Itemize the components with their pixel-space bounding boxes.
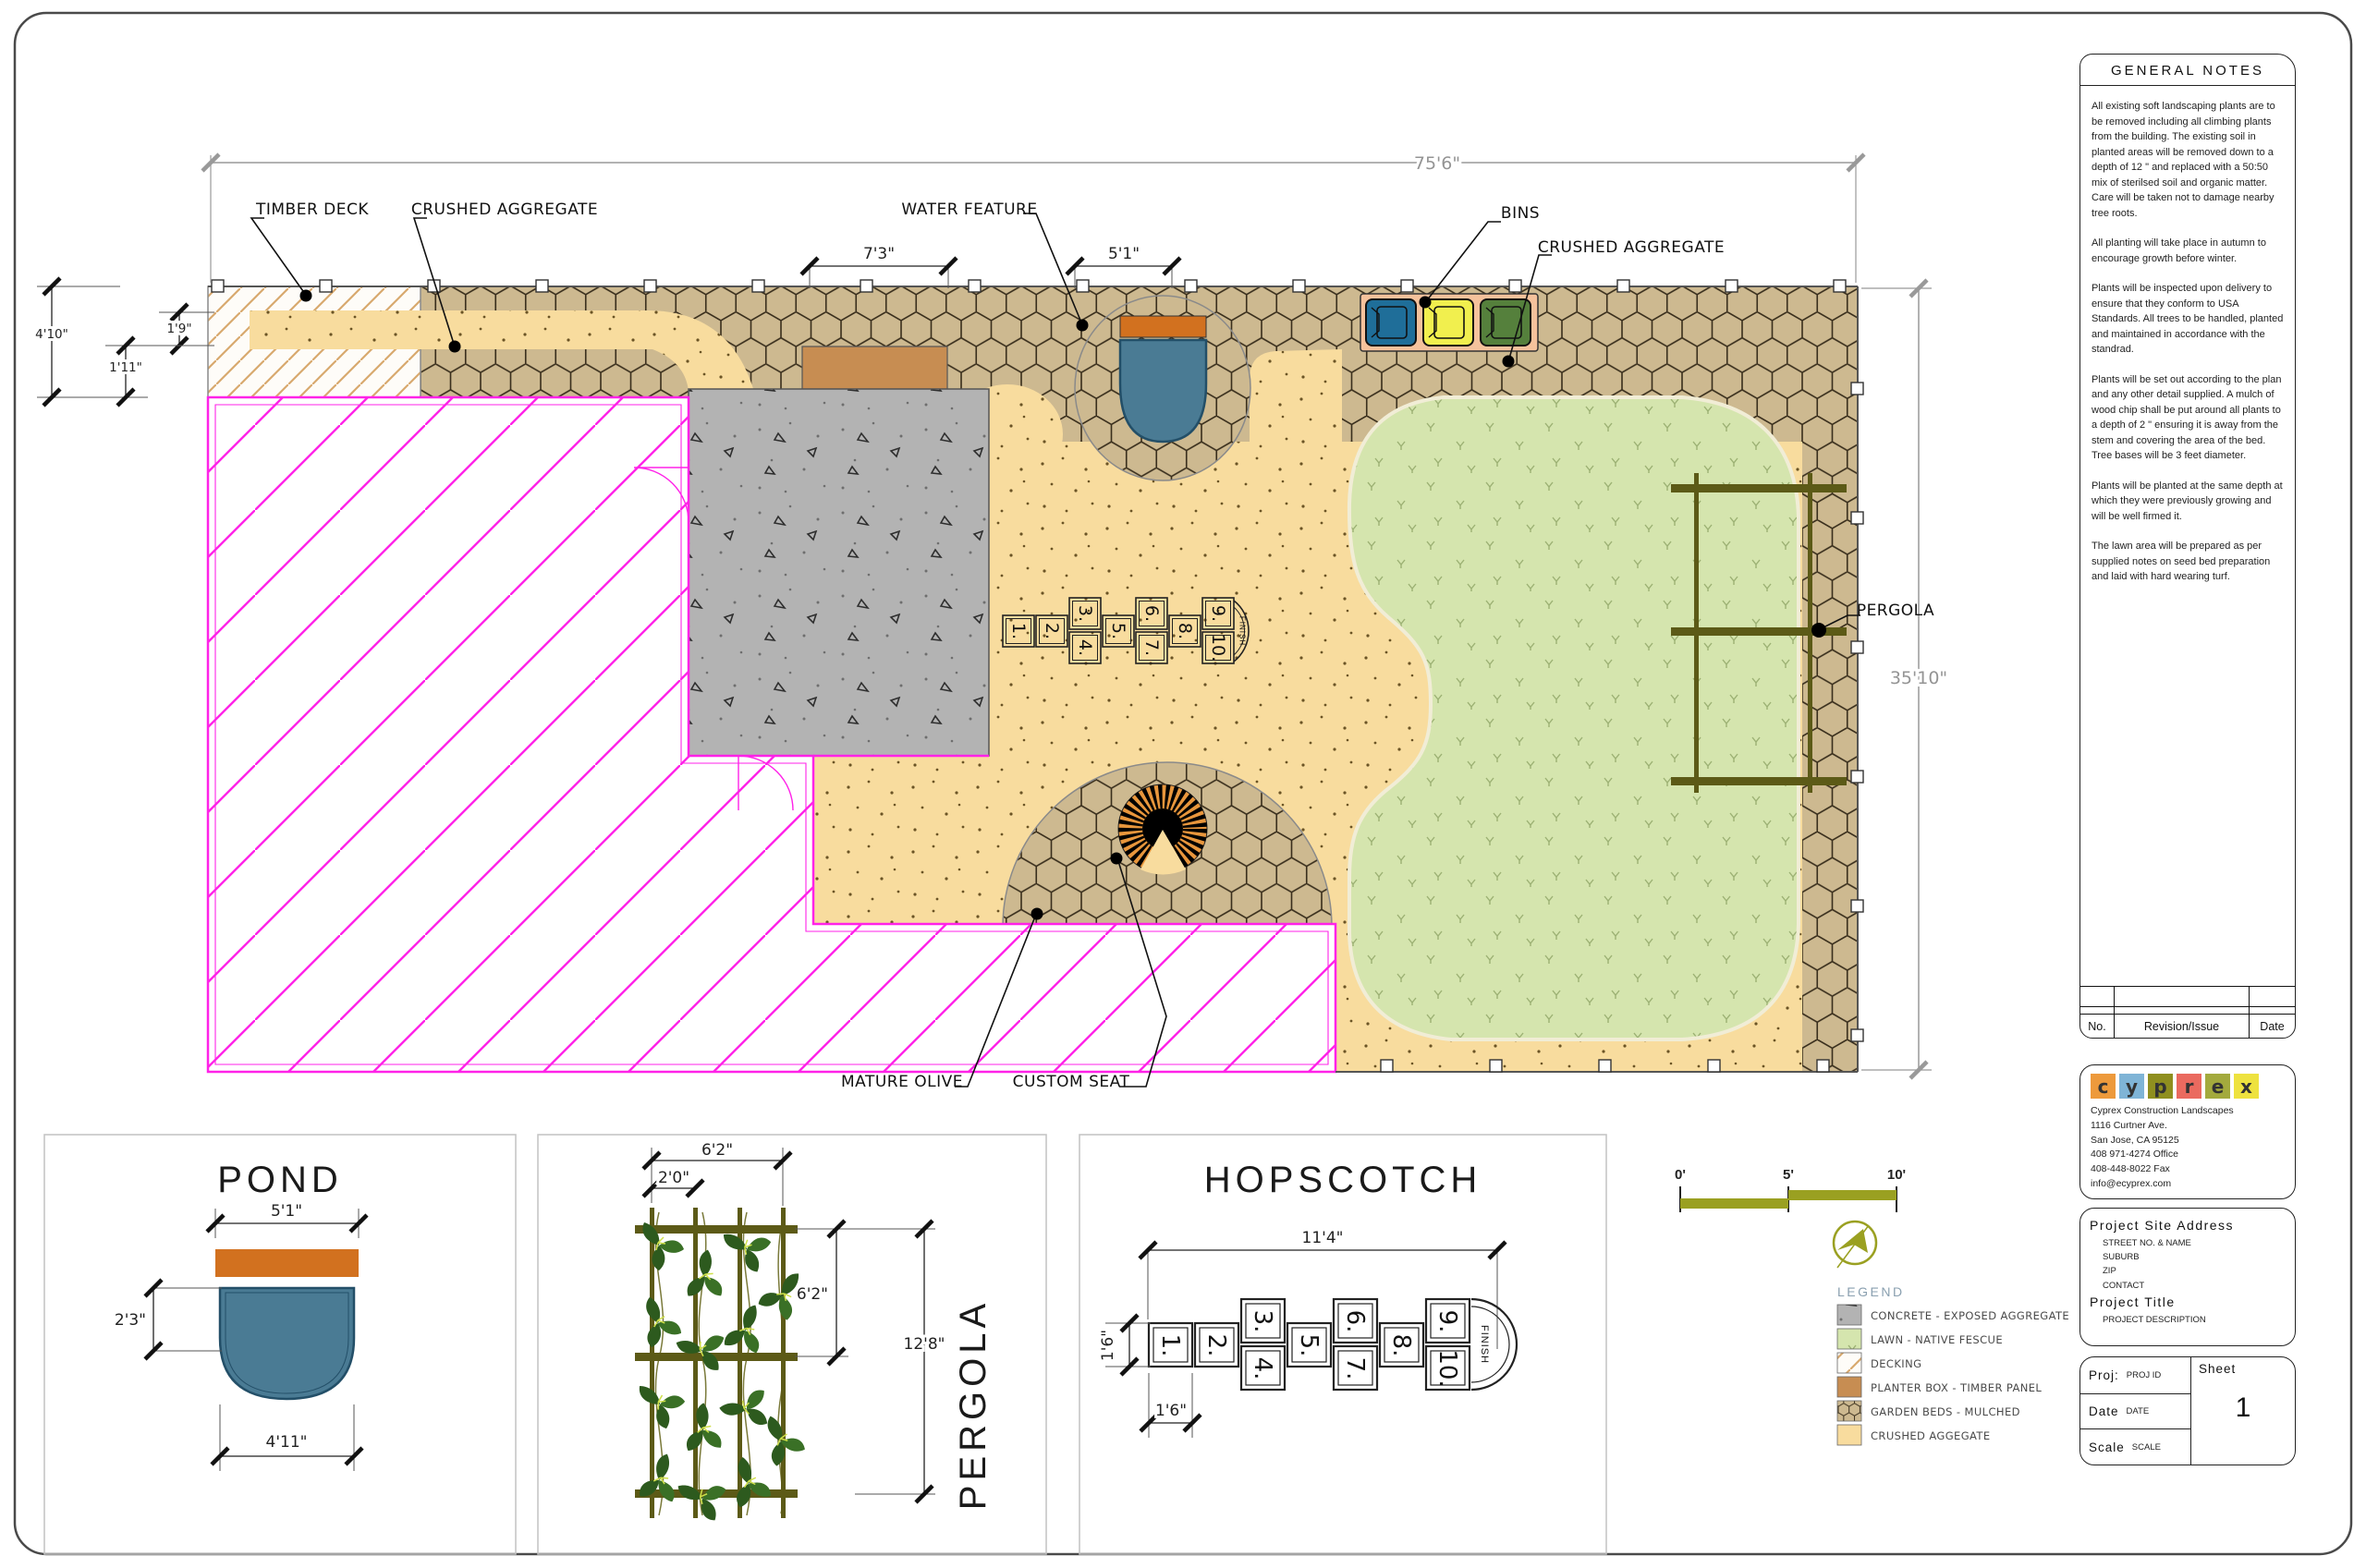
proj-value: PROJ ID [2127, 1370, 2161, 1380]
hop-5: 5. [1295, 1334, 1323, 1357]
note-paragraph: The lawn area will be prepared as per su… [2092, 539, 2284, 585]
plan-hop-9: 9. [1208, 605, 1228, 622]
hop-3: 3. [1249, 1310, 1276, 1333]
planter-box [802, 346, 947, 389]
legend-label-planter: PLANTER BOX - TIMBER PANEL [1871, 1381, 2042, 1394]
scale-10: 10' [1887, 1167, 1906, 1183]
note-paragraph: Plants will be inspected upon delivery t… [2092, 281, 2284, 358]
plan-finish-label: FINISH [1238, 616, 1247, 646]
label-bins: BINS [1501, 204, 1540, 223]
pergola-dim-bay: 2'0" [658, 1169, 689, 1187]
company-phone: 408 971-4274 Office [2091, 1148, 2285, 1162]
site-line-suburb: SUBURB [2103, 1250, 2286, 1264]
pergola-dim-mid: 6'2" [797, 1285, 828, 1304]
legend-label-gardenbed: GARDEN BEDS - MULCHED [1871, 1405, 2020, 1418]
legend-swatch-aggregate [1837, 1425, 1861, 1445]
plan-hop-8: 8. [1175, 623, 1195, 639]
rev-col-revision: Revision/Issue [2114, 1015, 2249, 1038]
project-meta-block: Proj: PROJ ID Date DATE Scale SCALE Shee… [2079, 1356, 2296, 1465]
legend-swatch-concrete [1837, 1305, 1861, 1325]
legend-label-decking: DECKING [1871, 1357, 1921, 1370]
sheet-label: Sheet [2199, 1362, 2236, 1376]
pond-timber-edge [215, 1249, 359, 1277]
cyprex-logo: c y p r e x [2091, 1074, 2285, 1099]
hop-10: 10. [1433, 1349, 1461, 1387]
landscape-plan-sheet: 1. 2. 3. 4. 5. 6. 7. 8. 9. 10. FINISH [0, 0, 2366, 1568]
scale-bar: 0' 5' 10' [1675, 1167, 1906, 1212]
aggregate-bulge-b [1250, 349, 1342, 442]
pergola-dim-top: 6'2" [701, 1141, 733, 1160]
company-address2: San Jose, CA 95125 [2091, 1134, 2285, 1149]
rev-col-no: No. [2080, 1015, 2114, 1038]
bin-yellow [1423, 299, 1473, 346]
label-timber-deck: TIMBER DECK [255, 201, 369, 219]
vine-stems [655, 1212, 783, 1515]
meta-left: Proj: PROJ ID Date DATE Scale SCALE [2080, 1357, 2191, 1465]
company-fax: 408-448-8022 Fax [2091, 1162, 2285, 1177]
logo-letter-y: y [2119, 1074, 2144, 1099]
rev-col-date: Date [2249, 1015, 2295, 1038]
pergola-detail: 6'2" 2'0" 6'2" 12'8" PERGOLA [629, 1141, 994, 1528]
hopscotch-detail: HOPSCOTCH 11'4" [1099, 1160, 1517, 1438]
custom-seat-plan [1118, 784, 1207, 875]
hopscotch-title: HOPSCOTCH [1204, 1160, 1482, 1200]
plan-hop-10: 10. [1208, 634, 1228, 662]
dim-left-height: 4'10" [35, 327, 68, 342]
pond-title: POND [217, 1160, 343, 1200]
proj-label: Proj: [2089, 1368, 2119, 1382]
hop-7: 7. [1341, 1357, 1369, 1380]
general-notes-panel: GENERAL NOTES All existing soft landscap… [2079, 54, 2296, 1039]
site-line-street: STREET NO. & NAME [2103, 1236, 2286, 1250]
legend-title: LEGEND [1837, 1284, 1905, 1299]
date-row: Date DATE [2080, 1393, 2190, 1429]
legend-label-aggregate: CRUSHED AGGEGATE [1871, 1429, 1991, 1442]
date-value: DATE [2127, 1406, 2150, 1416]
site-line-contact: CONTACT [2103, 1279, 2286, 1293]
hopscotch-dim-bottom: 1'6" [1155, 1402, 1187, 1420]
site-line-zip: ZIP [2103, 1264, 2286, 1278]
dim-left-small-b: 1'11" [109, 360, 142, 375]
plan-hop-6: 6. [1141, 605, 1162, 622]
logo-letter-p: p [2148, 1074, 2173, 1099]
logo-letter-e: e [2205, 1074, 2230, 1099]
dim-left-small-a: 1'9" [166, 322, 191, 336]
legend-label-concrete: CONCRETE - EXPOSED AGGREGATE [1871, 1309, 2069, 1322]
dim-overall-width: 75'6" [1414, 153, 1460, 174]
note-paragraph: All existing soft landscaping plants are… [2092, 99, 2284, 221]
legend-label-lawn: LAWN - NATIVE FESCUE [1871, 1333, 2003, 1346]
plan-hop-4: 4. [1075, 639, 1095, 656]
water-feature [1120, 316, 1206, 442]
north-compass-icon [1834, 1222, 1876, 1268]
sheet-cell: Sheet 1 [2191, 1357, 2295, 1465]
pond-dim-top: 5'1" [271, 1202, 302, 1221]
dim-water-width: 5'1" [1108, 245, 1140, 263]
pond-water [220, 1288, 354, 1399]
concrete-area [689, 389, 989, 756]
pond-dim-bottom: 4'11" [266, 1433, 308, 1452]
label-pergola: PERGOLA [1857, 602, 1934, 620]
site-plan-svg: 1. 2. 3. 4. 5. 6. 7. 8. 9. 10. FINISH [0, 0, 2366, 1568]
main-plan: 1. 2. 3. 4. 5. 6. 7. 8. 9. 10. FINISH [35, 153, 1947, 1091]
project-title-label: Project Title [2090, 1295, 2286, 1309]
scale-value: SCALE [2132, 1442, 2161, 1453]
dim-planter-width: 7'3" [863, 245, 895, 263]
note-paragraph: All planting will take place in autumn t… [2092, 236, 2284, 266]
hop-4: 4. [1249, 1357, 1276, 1380]
revision-table: No. Revision/Issue Date [2080, 986, 2295, 1038]
notes-body: All existing soft landscaping plants are… [2080, 86, 2295, 585]
legend-swatch-gardenbed [1837, 1401, 1861, 1421]
pond-detail: POND 5'1" 2'3" 4'11" [115, 1160, 367, 1471]
project-description: PROJECT DESCRIPTION [2103, 1313, 2286, 1327]
scale-5: 5' [1783, 1167, 1794, 1183]
scale-0: 0' [1675, 1167, 1686, 1183]
date-label: Date [2089, 1404, 2119, 1418]
label-custom-seat: CUSTOM SEAT [1013, 1073, 1130, 1091]
plan-hop-2: 2. [1042, 623, 1062, 639]
legend: LEGEND CONCRETE - EXPOSED AGGREGATE LAWN… [1837, 1284, 2069, 1445]
note-paragraph: Plants will be set out according to the … [2092, 372, 2284, 464]
note-paragraph: Plants will be planted at the same depth… [2092, 479, 2284, 525]
hop-9: 9. [1433, 1310, 1461, 1333]
plan-hop-3: 3. [1075, 605, 1095, 622]
bin-blue [1366, 299, 1416, 346]
proj-row: Proj: PROJ ID [2080, 1357, 2190, 1393]
hop-2: 2. [1202, 1334, 1230, 1357]
legend-swatch-lawn [1837, 1329, 1861, 1349]
hopscotch-dim-top: 11'4" [1302, 1229, 1344, 1247]
company-name: Cyprex Construction Landscapes [2091, 1104, 2285, 1119]
legend-swatch-decking [1837, 1353, 1861, 1373]
hop-6: 6. [1341, 1310, 1369, 1333]
pergola-dim-total: 12'8" [904, 1335, 945, 1354]
project-site-block: Project Site Address STREET NO. & NAME S… [2079, 1208, 2296, 1346]
site-address-title: Project Site Address [2090, 1218, 2286, 1233]
bins-group [1360, 294, 1538, 351]
notes-title: GENERAL NOTES [2080, 55, 2295, 86]
sheet-number: 1 [2191, 1392, 2295, 1424]
company-email: info@ecyprex.com [2091, 1177, 2285, 1192]
label-mature-olive: MATURE OLIVE [841, 1073, 963, 1091]
company-block: c y p r e x Cyprex Construction Landscap… [2079, 1064, 2296, 1199]
label-crushed-aggregate-left: CRUSHED AGGREGATE [411, 201, 598, 219]
hop-1: 1. [1156, 1334, 1184, 1357]
legend-swatch-planter [1837, 1377, 1861, 1397]
company-address1: 1116 Curtner Ave. [2091, 1119, 2285, 1134]
label-crushed-aggregate-right: CRUSHED AGGREGATE [1538, 238, 1725, 257]
hopscotch-dim-left: 1'6" [1099, 1330, 1117, 1361]
plan-hop-1: 1. [1008, 623, 1029, 639]
logo-letter-c: c [2091, 1074, 2116, 1099]
pond-dim-left: 2'3" [115, 1311, 146, 1330]
plan-hop-5: 5. [1108, 623, 1128, 639]
plan-hop-7: 7. [1141, 639, 1162, 656]
hop-8: 8. [1387, 1334, 1415, 1357]
scale-label: Scale [2089, 1440, 2125, 1454]
label-water-feature: WATER FEATURE [901, 201, 1037, 219]
dim-right-height: 35'10" [1890, 668, 1947, 688]
bin-green [1481, 299, 1531, 346]
scale-row: Scale SCALE [2080, 1428, 2190, 1465]
logo-letter-x: x [2234, 1074, 2259, 1099]
pergola-detail-title: PERGOLA [953, 1299, 994, 1510]
logo-letter-r: r [2177, 1074, 2201, 1099]
finish-label: FINISH [1479, 1325, 1490, 1364]
